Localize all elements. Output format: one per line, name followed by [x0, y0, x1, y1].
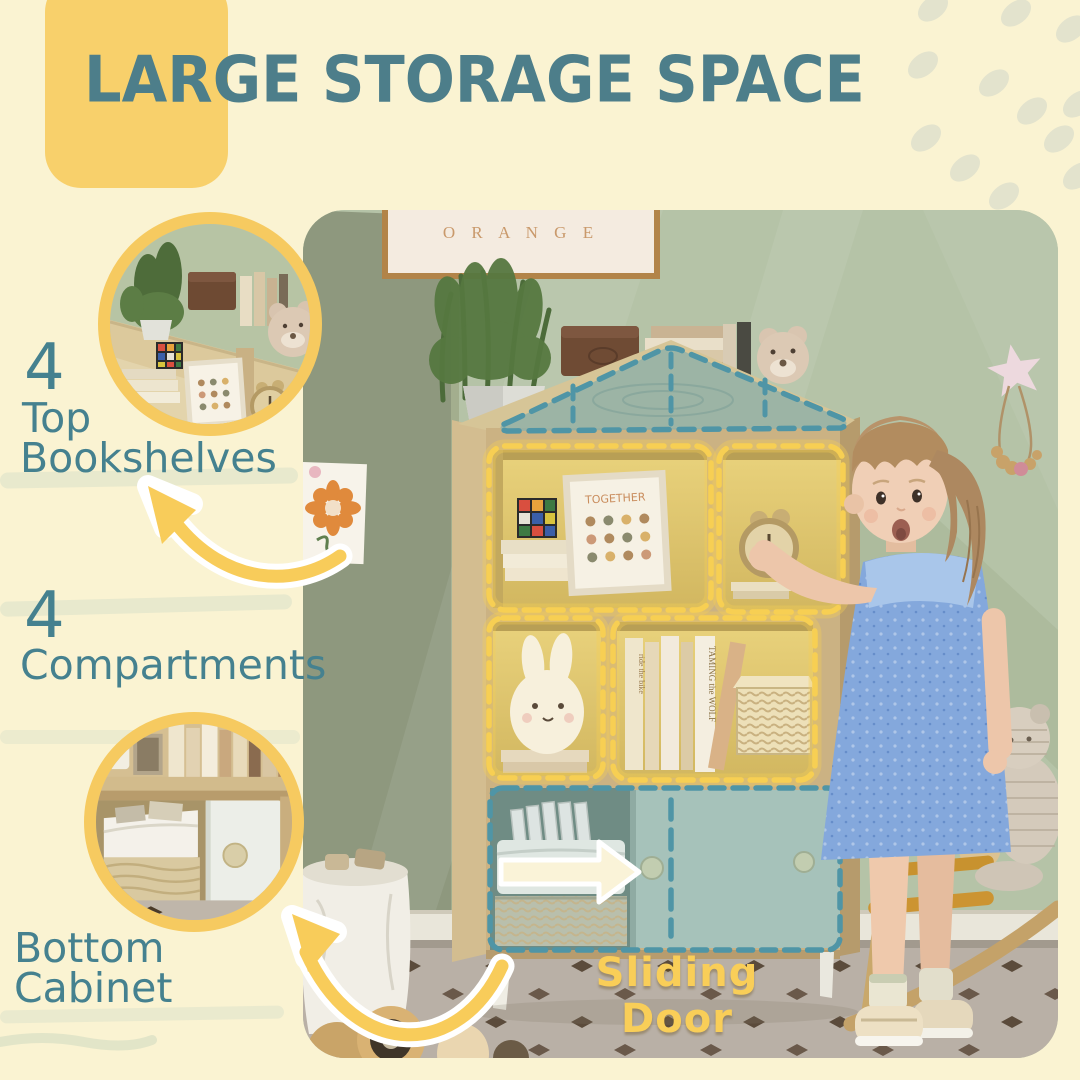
- door-knob: [794, 852, 814, 872]
- feature1-number: 4: [24, 336, 65, 400]
- wall-art-frame: O R A N G E: [385, 210, 657, 276]
- bookshelf: TOGETHER: [452, 340, 860, 1025]
- inset-bottom-cabinet: [84, 712, 304, 932]
- rubiks-cube: [517, 498, 557, 538]
- sliding-door-label: Sliding Door: [547, 950, 807, 1042]
- page-title: LARGE STORAGE SPACE: [84, 42, 984, 117]
- wall-art-text: O R A N G E: [443, 223, 599, 242]
- inset-top-bookshelves: [98, 212, 322, 436]
- marketing-graphic: LARGE STORAGE SPACE: [0, 0, 1080, 1080]
- product-photo: O R A N G E: [303, 210, 1058, 1058]
- feature3-label-line1: Bottom: [14, 928, 164, 969]
- feature3-label-line2: Cabinet: [14, 968, 172, 1009]
- wicker-basket: [733, 676, 815, 754]
- feature2-label-line1: Compartments: [20, 645, 326, 686]
- bottom-cabinet: [490, 788, 840, 950]
- flower-artwork: [303, 462, 367, 564]
- feature2-number: 4: [24, 584, 65, 648]
- laundry-basket: [303, 848, 410, 1034]
- feature1-label-line1: Top: [22, 398, 91, 439]
- feature1-label-line2: Bookshelves: [20, 438, 277, 479]
- room-scene: O R A N G E: [303, 210, 1058, 1058]
- book-spine: TAMING the WOLF: [707, 646, 717, 722]
- book-spine: ride the bike: [637, 654, 646, 694]
- door-knob: [641, 857, 663, 879]
- teddy-bear-head: [757, 326, 809, 384]
